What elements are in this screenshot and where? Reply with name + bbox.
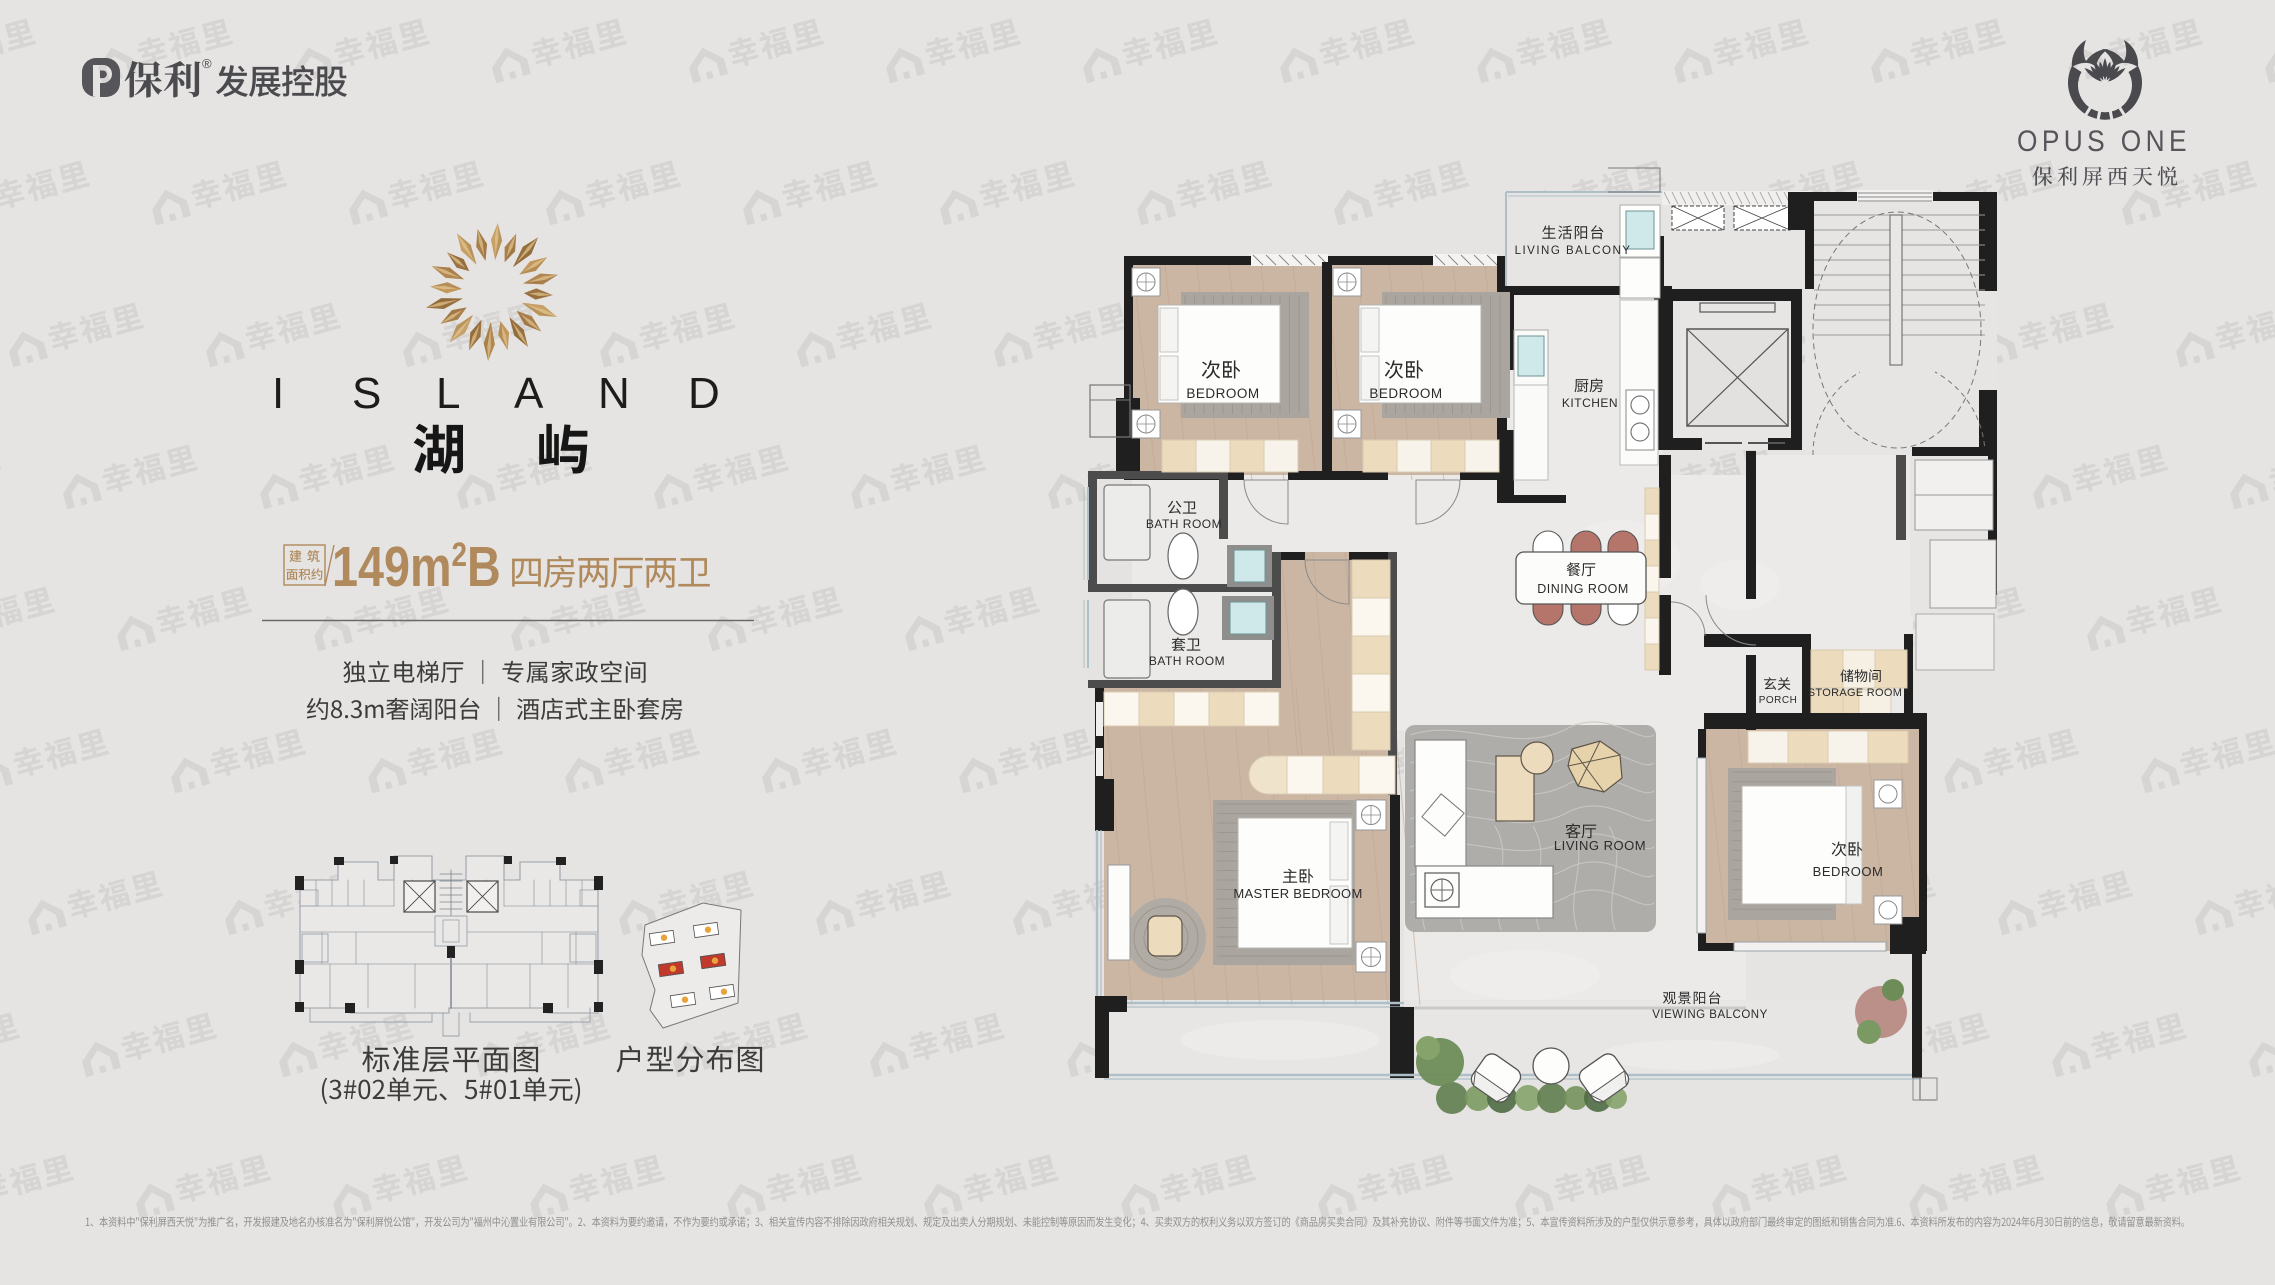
svg-text:STORAGE ROOM: STORAGE ROOM xyxy=(1808,687,1902,699)
svg-text:BEDROOM: BEDROOM xyxy=(1369,386,1442,401)
svg-text:LIVING ROOM: LIVING ROOM xyxy=(1554,838,1646,853)
svg-text:MASTER BEDROOM: MASTER BEDROOM xyxy=(1233,886,1362,901)
svg-text:VIEWING BALCONY: VIEWING BALCONY xyxy=(1652,1009,1768,1021)
svg-text:LIVING BALCONY: LIVING BALCONY xyxy=(1515,245,1632,257)
svg-text:BATH ROOM: BATH ROOM xyxy=(1149,654,1225,668)
svg-text:®: ® xyxy=(202,56,212,71)
svg-text:149m2B: 149m2B xyxy=(332,535,501,599)
svg-text:BEDROOM: BEDROOM xyxy=(1813,864,1884,879)
svg-text:OPUS ONE: OPUS ONE xyxy=(2017,125,2191,158)
svg-text:KITCHEN: KITCHEN xyxy=(1562,396,1618,410)
svg-text:BATH ROOM: BATH ROOM xyxy=(1146,517,1222,531)
svg-text:BEDROOM: BEDROOM xyxy=(1186,386,1259,401)
svg-text:PORCH: PORCH xyxy=(1759,695,1798,706)
svg-text:DINING ROOM: DINING ROOM xyxy=(1537,582,1629,596)
